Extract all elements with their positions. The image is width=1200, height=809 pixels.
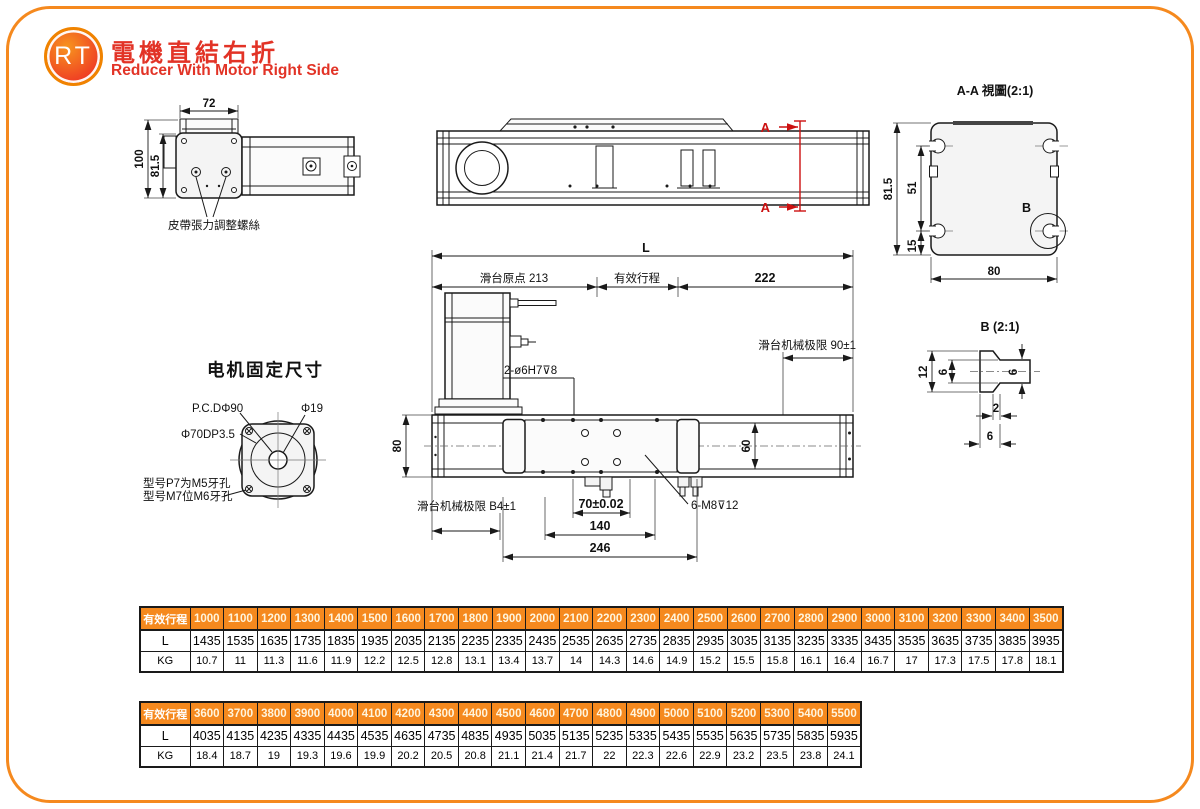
stroke-header-cell: 4300 [425,702,459,725]
dim-6-head: 6 [938,369,950,375]
value-cell: 4635 [391,725,425,746]
value-cell: 18.1 [1029,651,1063,672]
value-cell: 10.7 [190,651,224,672]
value-cell: 4035 [190,725,224,746]
value-cell: 5035 [525,725,559,746]
value-cell: 12.2 [358,651,392,672]
dim-12: 12 [918,366,930,379]
value-cell: 4435 [324,725,358,746]
limit-sensors [585,477,702,497]
stroke-header-cell: 4700 [559,702,593,725]
stroke-header-cell: 2100 [559,607,593,630]
value-cell: 16.4 [828,651,862,672]
stroke-header-cell: 3200 [928,607,962,630]
value-cell: 5135 [559,725,593,746]
value-cell: 22.3 [626,746,660,767]
plan-view-drawing: L 滑台原点 213 有效行程 222 滑台机械极限 90±1 2-ø6H7⊽8 [398,240,868,572]
pcd-label: P.C.DΦ90 [192,403,243,415]
value-cell: 4935 [492,725,526,746]
value-cell: 2835 [660,630,694,651]
stroke-header-cell: 2800 [794,607,828,630]
section-dim-51: 51 [907,146,930,231]
value-cell: 2135 [425,630,459,651]
dim-81-5-section: 81.5 [883,177,895,200]
stroke-header-cell: 1000 [190,607,224,630]
section-view-drawing: A-A 視圖(2:1) B 81.5 51 15 80 [880,78,1095,290]
value-cell: 5835 [794,725,828,746]
dim-246-label: 246 [590,541,611,555]
value-cell: 3435 [861,630,895,651]
stroke-header-cell: 3800 [257,702,291,725]
stroke-table-header-label: 有效行程 [140,702,190,725]
stroke-spec-table-1: 有效行程100011001200130014001500160017001800… [139,606,1064,673]
front-view-dim-72: 72 [180,98,238,118]
front-view-drawing: 72 100 81.5 皮帶張力調整螺絲 [125,92,417,237]
stroke-header-cell: 2600 [727,607,761,630]
stroke-header-cell: 1500 [358,607,392,630]
value-cell: 19.9 [358,746,392,767]
value-cell: 11.3 [257,651,291,672]
value-cell: 3235 [794,630,828,651]
stroke-header-cell: 5200 [727,702,761,725]
value-cell: 2335 [492,630,526,651]
value-cell: 3735 [962,630,996,651]
catalog-page: { "page": { "logo_text": "RT", "title_zh… [0,0,1200,809]
belt-tension-label: 皮帶張力調整螺絲 [168,218,260,232]
dim-80-section: 80 [988,266,1001,278]
detail-dim-6-bar: 6 [1008,344,1022,399]
value-cell: 20.2 [391,746,425,767]
value-cell: 16.7 [861,651,895,672]
stroke-header-cell: 2500 [693,607,727,630]
value-cell: 1435 [190,630,224,651]
stroke-header-cell: 1700 [425,607,459,630]
stroke-header-cell: 5300 [760,702,794,725]
stroke-header-cell: 2000 [526,607,560,630]
stroke-header-cell: 2300 [626,607,660,630]
value-cell: 18.7 [224,746,258,767]
section-dim-80: 80 [931,257,1057,283]
dim-51: 51 [907,181,919,194]
stroke-header-cell: 3000 [861,607,895,630]
stroke-header-cell: 4800 [593,702,627,725]
value-cell: 1735 [291,630,325,651]
dim-100: 100 [134,149,146,168]
stroke-header-cell: 4200 [391,702,425,725]
dim-72: 72 [203,98,216,110]
value-cell: 15.2 [693,651,727,672]
stroke-header-cell: 3700 [224,702,258,725]
value-cell: 2635 [593,630,627,651]
rt-logo-text: RT [54,42,93,71]
dim-overall-L: L [642,241,650,255]
dim-effective-stroke: 有效行程 [614,271,660,285]
value-cell: 13.7 [526,651,560,672]
stroke-header-cell: 1300 [291,607,325,630]
value-cell: 17.5 [962,651,996,672]
stroke-header-cell: 1900 [492,607,526,630]
value-cell: 13.4 [492,651,526,672]
value-cell: 3935 [1029,630,1063,651]
stroke-header-cell: 1800 [459,607,493,630]
shaft-dia-label: Φ19 [301,403,323,415]
stroke-header-cell: 2700 [761,607,795,630]
value-cell: 22.6 [660,746,694,767]
value-cell: 20.8 [458,746,492,767]
value-cell: 23.8 [794,746,828,767]
value-cell: 3835 [996,630,1030,651]
section-view-title: A-A 視圖(2:1) [957,83,1034,98]
value-cell: 3035 [727,630,761,651]
value-cell: 5535 [693,725,727,746]
value-cell: 21.4 [525,746,559,767]
stroke-header-cell: 4500 [492,702,526,725]
value-cell: 16.1 [794,651,828,672]
value-cell: 2035 [391,630,425,651]
value-cell: 14.9 [660,651,694,672]
value-cell: 17.8 [996,651,1030,672]
value-cell: 21.7 [559,746,593,767]
dim-140-label: 140 [590,519,611,533]
value-cell: 4535 [358,725,392,746]
value-cell: 4235 [257,725,291,746]
dim-6-bar: 6 [1008,369,1020,375]
value-cell: 5435 [660,725,694,746]
thread-note-line1: 型号P7为M5牙孔 [143,476,231,490]
detail-dim-6-neck: 6 [964,394,1016,448]
stroke-header-cell: 3500 [1029,607,1063,630]
row-label-cell: KG [140,746,190,767]
detail-dim-2: 2 [976,394,1017,420]
stroke-header-cell: 4600 [525,702,559,725]
stroke-header-cell: 2900 [828,607,862,630]
dim-6-neck: 6 [987,431,993,443]
detail-b-drawing: B (2:1) 12 6 6 2 6 [915,318,1080,458]
value-cell: 1535 [224,630,258,651]
stroke-header-cell: 1100 [224,607,258,630]
value-cell: 3535 [895,630,929,651]
value-cell: 2935 [693,630,727,651]
value-cell: 11.6 [291,651,325,672]
stroke-header-cell: 4900 [626,702,660,725]
stroke-header-cell: 4000 [324,702,358,725]
value-cell: 3135 [761,630,795,651]
row-label-cell: L [140,630,190,651]
thread-note-line2: 型号M7位M6牙孔 [143,489,233,503]
value-cell: 15.8 [761,651,795,672]
dim-60: 60 [741,440,753,453]
value-cell: 1635 [257,630,291,651]
value-cell: 1835 [324,630,358,651]
value-cell: 23.2 [727,746,761,767]
value-cell: 4335 [291,725,325,746]
value-cell: 17 [895,651,929,672]
value-cell: 4735 [425,725,459,746]
value-cell: 14.3 [593,651,627,672]
section-marker-a-bottom: A [761,200,771,215]
value-cell: 2535 [559,630,593,651]
section-marker-a-top: A [761,120,771,135]
value-cell: 24.1 [827,746,861,767]
value-cell: 20.5 [425,746,459,767]
stroke-header-cell: 4400 [458,702,492,725]
value-cell: 12.8 [425,651,459,672]
stroke-header-cell: 5500 [827,702,861,725]
stroke-header-cell: 3900 [291,702,325,725]
value-cell: 21.1 [492,746,526,767]
motor-body [435,293,556,414]
stroke-header-cell: 5400 [794,702,828,725]
value-cell: 5335 [626,725,660,746]
value-cell: 2735 [626,630,660,651]
stroke-header-cell: 1400 [324,607,358,630]
value-cell: 5235 [593,725,627,746]
stroke-table-header-label: 有效行程 [140,607,190,630]
stroke-header-cell: 4100 [358,702,392,725]
dim-2: 2 [993,403,999,415]
stroke-header-cell: 5100 [693,702,727,725]
value-cell: 11.9 [324,651,358,672]
motor-shaft-bore [456,142,508,194]
value-cell: 13.1 [459,651,493,672]
value-cell: 2435 [526,630,560,651]
stroke-header-cell: 3300 [962,607,996,630]
value-cell: 14 [559,651,593,672]
value-cell: 4835 [458,725,492,746]
value-cell: 23.5 [760,746,794,767]
value-cell: 15.5 [727,651,761,672]
limit-right-label: 滑台机械极限 90±1 [758,338,856,352]
stroke-header-cell: 1600 [391,607,425,630]
value-cell: 1935 [358,630,392,651]
value-cell: 18.4 [190,746,224,767]
side-view-drawing: A A [425,98,885,220]
pin-holes-label: 2-ø6H7⊽8 [504,365,557,377]
section-dim-15: 15 [907,231,921,255]
value-cell: 19.6 [324,746,358,767]
stroke-header-cell: 1200 [257,607,291,630]
value-cell: 22 [593,746,627,767]
stroke-header-cell: 3600 [190,702,224,725]
stroke-header-cell: 3400 [996,607,1030,630]
value-cell: 22.9 [693,746,727,767]
limit-left-callout: 滑台机械极限 B4±1 [417,477,516,540]
stroke-header-cell: 2400 [660,607,694,630]
dim-80-plan: 80 [392,440,404,453]
value-cell: 2235 [459,630,493,651]
row-label-cell: KG [140,651,190,672]
value-cell: 11 [224,651,258,672]
value-cell: 19.3 [291,746,325,767]
value-cell: 19 [257,746,291,767]
dim-15: 15 [907,239,919,252]
value-cell: 17.3 [928,651,962,672]
dim-slide-origin-213: 滑台原点 213 [480,271,548,285]
value-cell: 14.6 [626,651,660,672]
value-cell: 4135 [224,725,258,746]
page-subtitle: Reducer With Motor Right Side [111,62,339,80]
tap-holes-label: 6-M8⊽12 [691,500,738,512]
dim-222: 222 [755,271,776,285]
detail-b-title: B (2:1) [981,320,1020,334]
row-label-cell: L [140,725,190,746]
rt-logo: RT [44,27,103,86]
motor-mount-drawing: P.C.DΦ90 Φ19 Φ70DP3.5 型号P7为M5牙孔 型号M7位M6牙… [140,355,390,510]
spigot-label: Φ70DP3.5 [181,429,235,441]
value-cell: 5935 [827,725,861,746]
value-cell: 12.5 [391,651,425,672]
stroke-header-cell: 5000 [660,702,694,725]
stroke-header-cell: 3100 [895,607,929,630]
value-cell: 3335 [828,630,862,651]
value-cell: 3635 [928,630,962,651]
stroke-header-cell: 2200 [593,607,627,630]
detail-marker-b: B [1022,201,1031,215]
value-cell: 5735 [760,725,794,746]
dim-81-5: 81.5 [150,154,162,177]
value-cell: 5635 [727,725,761,746]
dim-70-label: 70±0.02 [578,497,623,511]
carriage [503,418,699,474]
stroke-spec-table-2: 有效行程360037003800390040004100420043004400… [139,701,862,768]
